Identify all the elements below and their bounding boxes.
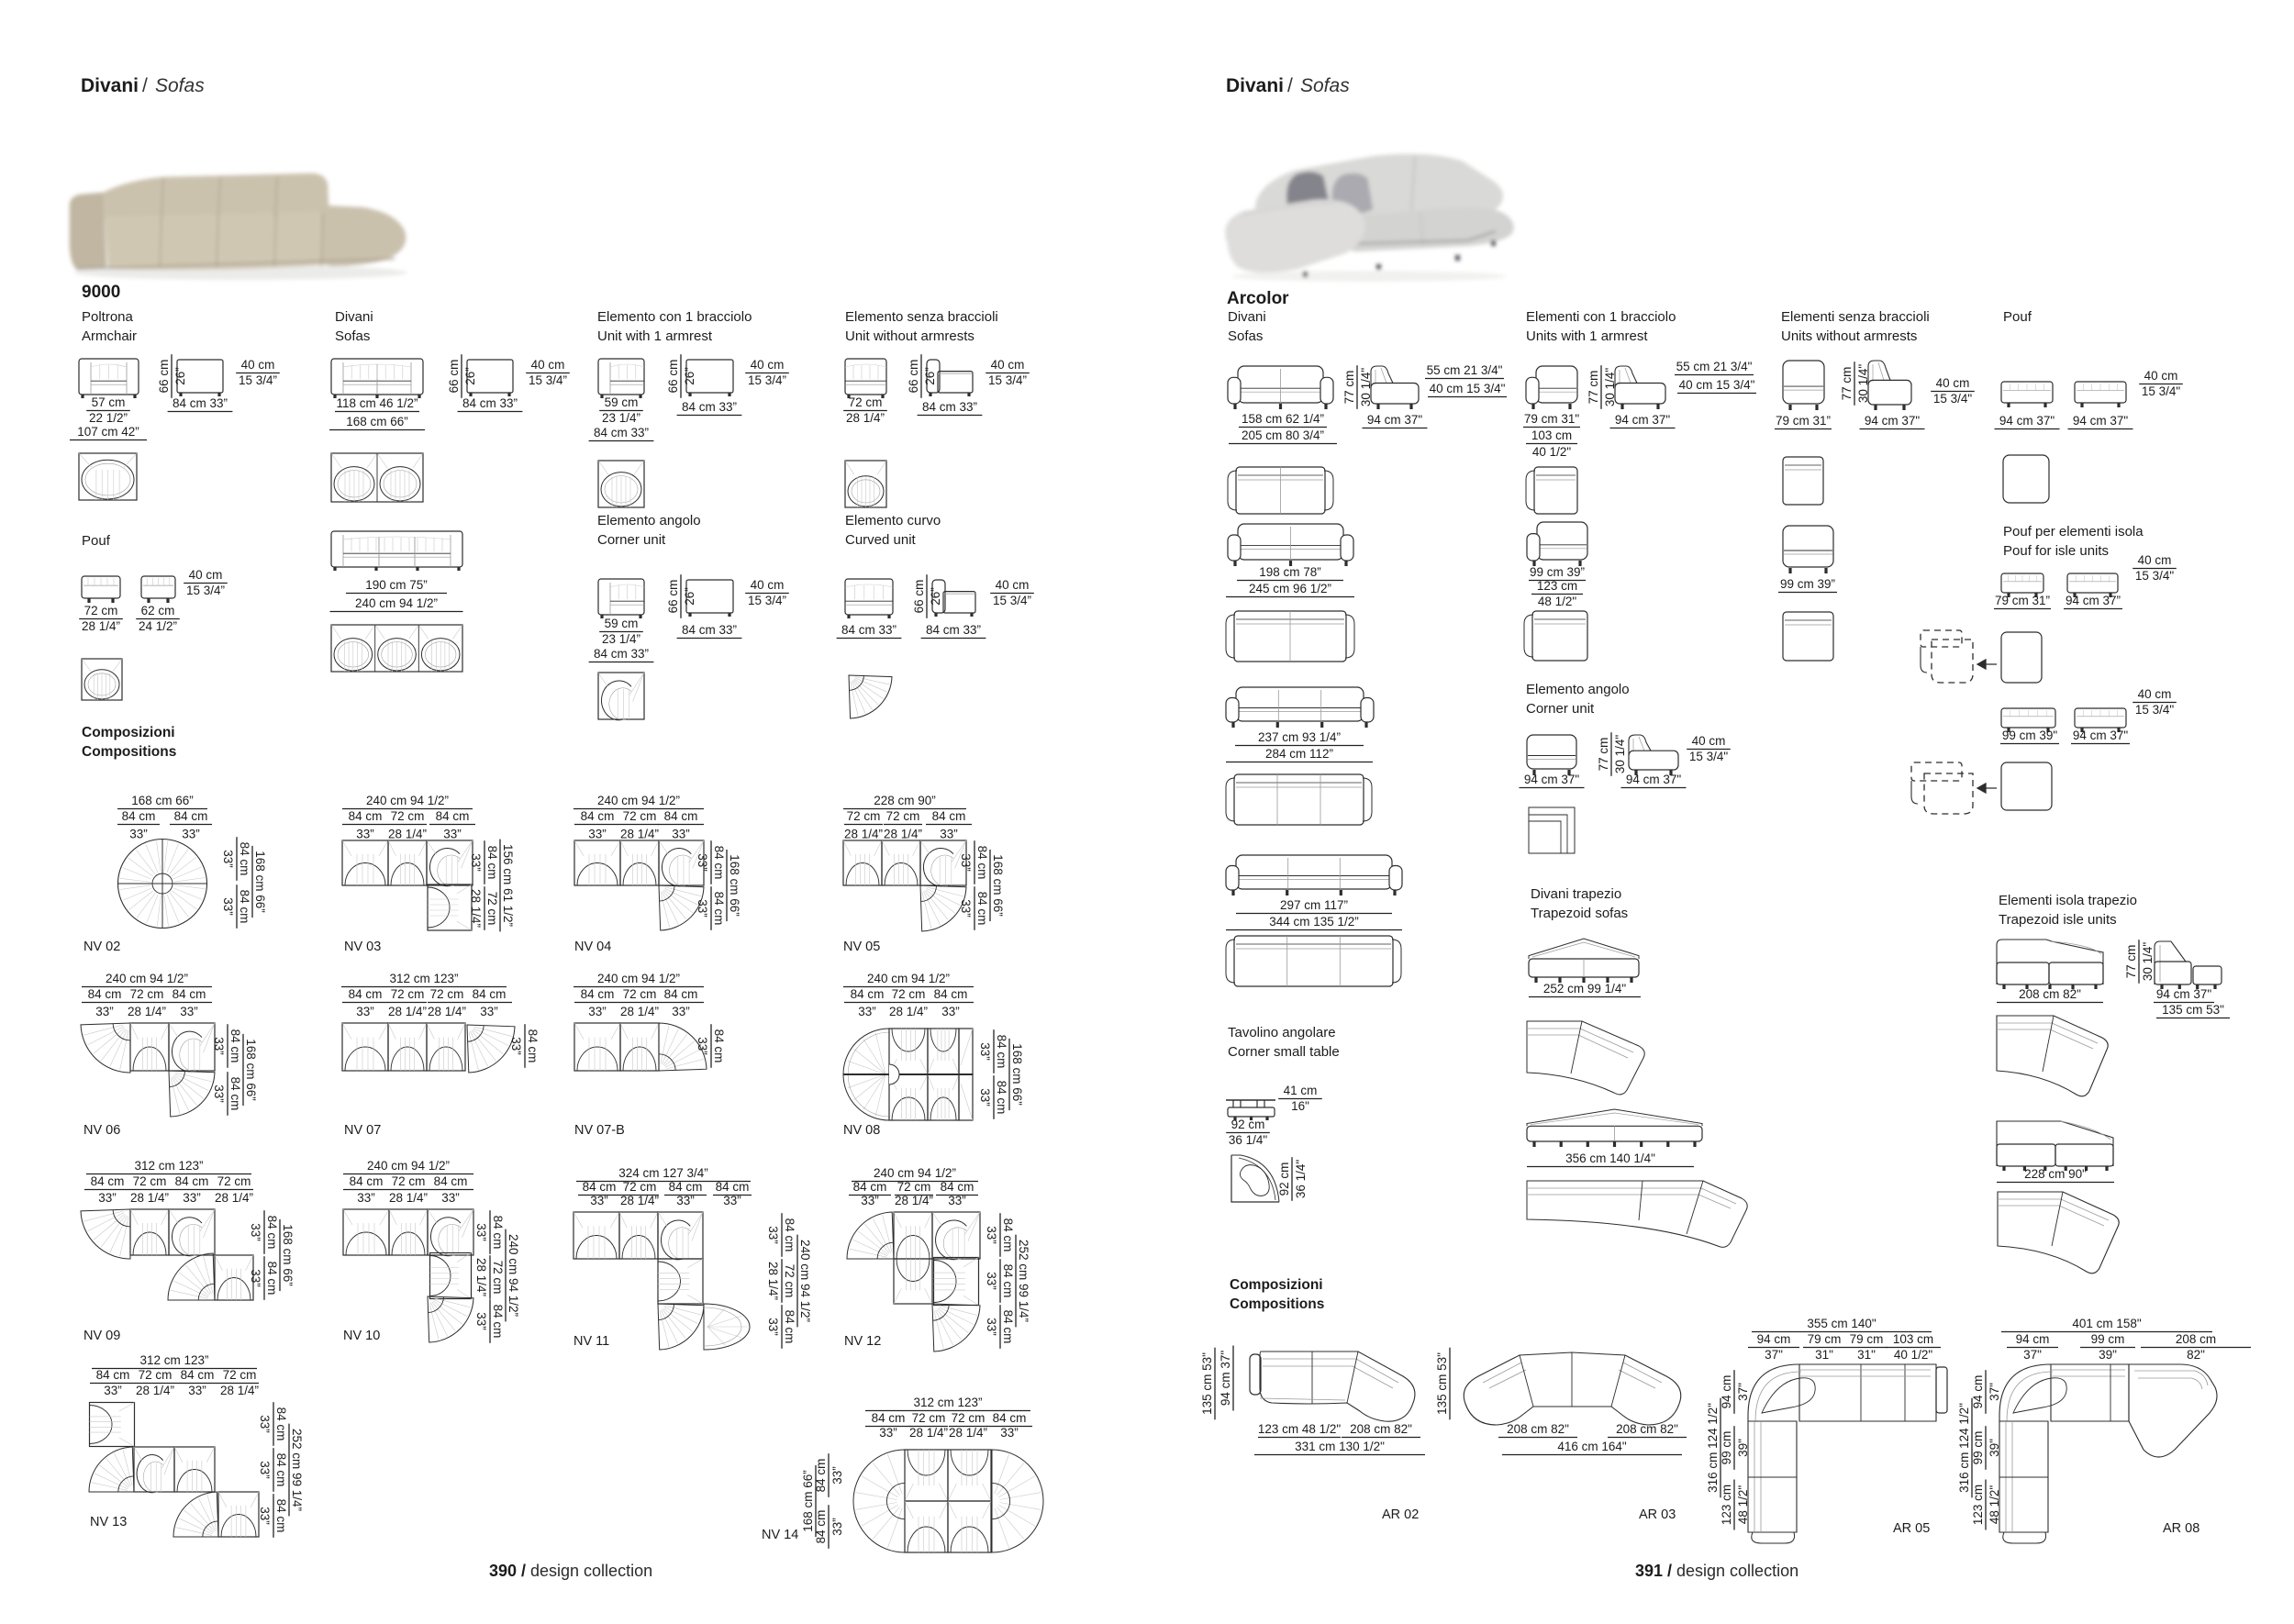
svg-text:66 cm: 66 cm [447,360,461,394]
svg-text:84 cm: 84 cm [274,1407,288,1441]
svg-text:84 cm: 84 cm [581,987,615,1001]
svg-text:158 cm 62 1/4”: 158 cm 62 1/4” [1242,412,1324,426]
svg-text:135 cm 53": 135 cm 53" [1200,1352,1214,1415]
svg-text:84 cm: 84 cm [228,1077,242,1111]
svg-text:40 cm: 40 cm [2138,553,2172,567]
svg-text:168 cm 66”: 168 cm 66” [253,851,267,913]
svg-text:331 cm 130 1/2": 331 cm 130 1/2" [1295,1440,1385,1453]
svg-text:33”: 33” [95,1005,114,1018]
svg-text:33”: 33” [696,1037,709,1055]
svg-text:15 3/4": 15 3/4" [2135,703,2175,717]
svg-text:84 cm: 84 cm [814,1459,828,1493]
svg-text:94 cm 37": 94 cm 37" [1219,1351,1232,1407]
svg-text:33”: 33” [959,899,973,918]
svg-text:NV 14: NV 14 [762,1528,798,1542]
svg-text:77 cm: 77 cm [1597,738,1610,772]
svg-text:Composizioni: Composizioni [1230,1277,1323,1293]
svg-text:168 cm 66”: 168 cm 66” [728,854,741,917]
svg-text:252 cm 99 1/4”: 252 cm 99 1/4” [1017,1240,1030,1322]
svg-text:33”: 33” [98,1191,117,1205]
svg-text:33”: 33” [474,1312,488,1330]
svg-text:99 cm: 99 cm [2091,1332,2125,1346]
svg-text:84 cm: 84 cm [238,890,251,924]
svg-text:24 1/2”: 24 1/2” [139,619,177,633]
svg-text:37": 37" [2023,1348,2042,1362]
svg-text:324 cm 127 3/4”: 324 cm 127 3/4” [618,1166,708,1180]
svg-text:84 cm: 84 cm [1001,1264,1015,1298]
svg-text:198 cm 78”: 198 cm 78” [1259,565,1321,579]
svg-text:NV 13: NV 13 [90,1515,127,1529]
svg-text:40 1/2": 40 1/2" [1532,445,1572,459]
svg-text:84 cm: 84 cm [173,987,206,1001]
svg-text:28 1/4”: 28 1/4” [620,828,659,841]
svg-text:401 cm 158": 401 cm 158" [2072,1317,2142,1330]
svg-text:33”: 33” [443,828,462,841]
svg-text:312 cm 123”: 312 cm 123” [139,1353,208,1367]
svg-text:Elementi con 1 bracciolo: Elementi con 1 bracciolo [1526,309,1676,325]
svg-text:168 cm 66”: 168 cm 66” [281,1224,295,1286]
svg-text:84 cm: 84 cm [995,1081,1008,1115]
svg-text:99 cm 39”: 99 cm 39” [1530,565,1585,579]
svg-text:28 1/4”: 28 1/4” [909,1426,948,1440]
svg-text:94 cm 37": 94 cm 37" [1367,413,1423,427]
svg-text:208 cm 82": 208 cm 82" [1616,1422,1678,1436]
svg-text:37": 37" [1765,1348,1783,1362]
svg-text:33”: 33” [474,1223,488,1241]
svg-text:33”: 33” [959,853,973,872]
svg-text:33”: 33” [1000,1426,1019,1440]
svg-text:84 cm: 84 cm [975,892,989,926]
svg-text:40 cm: 40 cm [991,358,1025,372]
svg-text:84 cm 33”: 84 cm 33” [594,647,649,661]
svg-text:99 cm 39”: 99 cm 39” [1780,577,1835,591]
svg-text:33”: 33” [978,1042,992,1061]
svg-text:84 cm: 84 cm [265,1262,279,1296]
svg-text:66 cm: 66 cm [912,580,926,614]
svg-text:84 cm 33”: 84 cm 33” [926,623,981,637]
svg-text:Divani: Divani [81,75,139,96]
svg-text:92 cm: 92 cm [1277,1162,1291,1196]
svg-text:84 cm 33”: 84 cm 33” [841,623,896,637]
svg-text:72 cm: 72 cm [130,987,164,1001]
svg-text:31": 31" [1815,1348,1833,1362]
svg-text:33”: 33” [480,1005,498,1018]
svg-text:Elemento con 1 bracciolo: Elemento con 1 bracciolo [597,309,752,325]
svg-text:NV 07: NV 07 [344,1123,381,1138]
svg-text:33”: 33” [249,1223,262,1241]
svg-text:30 1/4": 30 1/4" [2141,942,2155,982]
svg-text:Divani trapezio: Divani trapezio [1531,886,1621,902]
svg-text:33”: 33” [588,828,607,841]
svg-text:28 1/4”: 28 1/4” [846,411,885,425]
svg-text:Divani: Divani [1228,309,1266,325]
svg-text:84 cm: 84 cm [96,1368,130,1382]
svg-text:30 1/4": 30 1/4" [1603,368,1617,407]
svg-text:84 cm: 84 cm [174,809,208,823]
svg-text:26”: 26” [463,367,477,385]
svg-text:79 cm 31": 79 cm 31" [1524,412,1580,426]
svg-text:AR 08: AR 08 [2163,1521,2199,1536]
svg-text:30 1/4": 30 1/4" [1856,364,1870,404]
svg-text:NV 04: NV 04 [574,940,611,954]
svg-text:84 cm: 84 cm [664,987,698,1001]
svg-text:15 3/4”: 15 3/4” [748,373,786,387]
svg-text:design collection: design collection [530,1562,652,1580]
svg-text:Tavolino angolare: Tavolino angolare [1228,1025,1336,1040]
svg-text:118 cm 46 1/2”: 118 cm 46 1/2” [336,396,418,410]
svg-text:94 cm 37”: 94 cm 37” [2066,594,2121,607]
svg-text:84 cm: 84 cm [526,1029,540,1063]
svg-text:72 cm: 72 cm [952,1411,986,1425]
svg-text:NV 09: NV 09 [84,1329,120,1343]
svg-text:22 1/2”: 22 1/2” [89,411,128,425]
svg-text:36 1/4": 36 1/4" [1229,1133,1268,1147]
svg-text:72 cm: 72 cm [783,1264,796,1298]
svg-text:Elemento curvo: Elemento curvo [845,513,941,528]
svg-text:15 3/4": 15 3/4" [1933,392,1973,406]
svg-text:356 cm 140 1/4": 356 cm 140 1/4" [1565,1151,1655,1165]
svg-text:240 cm 94 1/2”: 240 cm 94 1/2” [106,972,188,985]
svg-text:84 cm: 84 cm [228,1029,242,1063]
svg-text:107 cm 42”: 107 cm 42” [77,425,139,439]
svg-text:208 cm 82": 208 cm 82" [2019,987,2081,1001]
svg-text:Trapezoid isle units: Trapezoid isle units [1999,912,2117,928]
svg-text:390 /: 390 / [489,1562,526,1580]
svg-text:344 cm 135 1/2”: 344 cm 135 1/2” [1269,915,1359,929]
svg-text:Sofas: Sofas [1300,75,1350,96]
svg-text:228 cm 90": 228 cm 90" [2024,1167,2087,1181]
svg-text:94 cm: 94 cm [1720,1375,1733,1409]
svg-text:23 1/4”: 23 1/4” [602,411,640,425]
svg-text:Compositions: Compositions [82,744,176,760]
svg-text:NV 07-B: NV 07-B [574,1123,625,1138]
svg-text:72 cm: 72 cm [133,1174,167,1188]
svg-text:33”: 33” [696,853,709,872]
svg-text:15 3/4": 15 3/4" [2135,569,2175,583]
svg-text:123 cm: 123 cm [1720,1485,1733,1525]
svg-text:84 cm: 84 cm [434,1174,468,1188]
svg-text:28 1/4”: 28 1/4” [388,1005,427,1018]
svg-text:Elemento angolo: Elemento angolo [1526,682,1630,697]
svg-text:92 cm: 92 cm [1231,1118,1265,1131]
svg-text:28 1/4”: 28 1/4” [895,1194,933,1207]
svg-text:168 cm 66”: 168 cm 66” [991,854,1005,917]
svg-text:72 cm: 72 cm [139,1368,173,1382]
svg-text:84 cm 33”: 84 cm 33” [462,396,518,410]
svg-text:72 cm: 72 cm [485,892,499,926]
svg-text:66 cm: 66 cm [907,360,920,394]
svg-text:Divani: Divani [335,309,373,325]
svg-text:84 cm: 84 cm [350,1174,384,1188]
svg-text:205 cm 80 3/4”: 205 cm 80 3/4” [1242,428,1324,442]
svg-text:28 1/4”: 28 1/4” [620,1005,659,1018]
svg-text:33”: 33” [879,1426,897,1440]
svg-text:NV 10: NV 10 [343,1329,380,1343]
svg-text:33”: 33” [672,828,690,841]
svg-text:84 cm: 84 cm [265,1216,279,1250]
svg-text:84 cm: 84 cm [934,987,968,1001]
svg-text:94 cm 37": 94 cm 37" [1865,414,1921,428]
svg-text:245 cm 96 1/2”: 245 cm 96 1/2” [1249,582,1331,595]
svg-text:84 cm: 84 cm [941,1180,974,1194]
svg-text:99 cm: 99 cm [1971,1431,1985,1465]
svg-text:NV 12: NV 12 [844,1334,881,1349]
svg-text:33”: 33” [129,828,148,841]
svg-text:168 cm 66”: 168 cm 66” [131,794,194,807]
svg-text:33”: 33” [830,1518,844,1536]
svg-text:33”: 33” [104,1384,122,1397]
svg-text:240 cm 94 1/2”: 240 cm 94 1/2” [507,1234,520,1317]
svg-text:26”: 26” [923,367,937,385]
svg-text:252 cm 99 1/4": 252 cm 99 1/4" [1543,982,1627,996]
svg-text:94 cm: 94 cm [1971,1375,1985,1409]
svg-text:33”: 33” [985,1318,998,1336]
svg-text:33”: 33” [221,897,235,916]
svg-text:123 cm: 123 cm [1971,1485,1985,1525]
svg-text:240 cm 94 1/2”: 240 cm 94 1/2” [867,972,950,985]
svg-text:15 3/4": 15 3/4" [2142,384,2181,398]
svg-text:40 cm: 40 cm [531,358,565,372]
svg-text:82": 82" [2187,1348,2205,1362]
svg-text:40 cm: 40 cm [751,578,785,592]
svg-text:84 cm: 84 cm [712,892,726,926]
svg-text:Divani: Divani [1226,75,1284,96]
svg-text:36 1/4": 36 1/4" [1294,1160,1308,1199]
svg-text:135 cm 53": 135 cm 53" [1435,1352,1449,1415]
svg-text:design collection: design collection [1676,1562,1798,1580]
svg-text:15 3/4”: 15 3/4” [239,373,277,387]
svg-text:240 cm 94 1/2”: 240 cm 94 1/2” [874,1166,956,1180]
svg-text:AR 05: AR 05 [1893,1521,1930,1536]
svg-text:33”: 33” [183,1191,201,1205]
svg-text:NV 11: NV 11 [573,1334,609,1349]
svg-text:123 cm 48 1/2": 123 cm 48 1/2" [1258,1422,1342,1436]
svg-text:23 1/4”: 23 1/4” [602,632,640,646]
svg-text:28 1/4”: 28 1/4” [889,1005,928,1018]
svg-text:33”: 33” [221,850,235,868]
svg-text:40 cm 15 3/4": 40 cm 15 3/4" [1430,382,1506,395]
svg-text:208 cm 82": 208 cm 82" [1507,1422,1569,1436]
svg-text:84 cm: 84 cm [932,809,966,823]
svg-text:33”: 33” [357,1191,375,1205]
svg-text:40 cm: 40 cm [2138,687,2172,701]
svg-text:Sofas: Sofas [1228,328,1263,344]
svg-text:33”: 33” [676,1194,695,1207]
svg-text:135 cm 53": 135 cm 53" [2162,1003,2224,1017]
svg-text:84 cm 33”: 84 cm 33” [682,623,737,637]
svg-text:208 cm 82": 208 cm 82" [1350,1422,1412,1436]
svg-text:84 cm: 84 cm [349,987,383,1001]
svg-text:55 cm 21 3/4": 55 cm 21 3/4" [1676,360,1753,373]
svg-text:84 cm: 84 cm [485,846,499,880]
svg-text:30 1/4": 30 1/4" [1359,368,1373,407]
svg-text:72 cm: 72 cm [892,987,926,1001]
svg-text:33”: 33” [948,1194,966,1207]
svg-text:77 cm: 77 cm [1587,371,1600,405]
svg-text:103 cm: 103 cm [1893,1332,1933,1346]
svg-text:Sofas: Sofas [155,75,205,96]
svg-text:Pouf per elementi isola: Pouf per elementi isola [2003,524,2144,539]
svg-text:Curved unit: Curved unit [845,532,917,548]
svg-text:Poltrona: Poltrona [82,309,134,325]
svg-text:/: / [142,75,148,96]
svg-text:240 cm 94 1/2”: 240 cm 94 1/2” [367,1159,450,1173]
svg-text:39": 39" [2099,1348,2117,1362]
svg-text:Elemento angolo: Elemento angolo [597,513,701,528]
svg-text:72 cm: 72 cm [912,1411,946,1425]
svg-text:28 1/4”: 28 1/4” [388,828,427,841]
svg-text:79 cm: 79 cm [1808,1332,1842,1346]
svg-text:72 cm: 72 cm [847,809,881,823]
svg-text:NV 02: NV 02 [84,940,120,954]
svg-text:Unit with 1 armrest: Unit with 1 armrest [597,328,713,344]
svg-text:33”: 33” [858,1005,876,1018]
svg-text:Pouf for isle units: Pouf for isle units [2003,543,2109,559]
svg-text:416 cm 164": 416 cm 164" [1557,1440,1627,1453]
svg-text:94 cm 37": 94 cm 37" [1626,773,1682,786]
svg-text:28 1/4”: 28 1/4” [220,1384,259,1397]
svg-text:72 cm: 72 cm [491,1261,505,1295]
svg-text:94 cm 37": 94 cm 37" [1615,413,1671,427]
svg-text:237 cm 93 1/4”: 237 cm 93 1/4” [1258,730,1341,744]
svg-text:33”: 33” [212,1085,226,1103]
svg-text:Elementi senza braccioli: Elementi senza braccioli [1781,309,1930,325]
svg-text:Corner small table: Corner small table [1228,1044,1340,1060]
svg-text:30 1/4": 30 1/4" [1613,735,1627,774]
svg-text:41 cm: 41 cm [1284,1084,1318,1097]
svg-text:84 cm 33”: 84 cm 33” [173,396,228,410]
svg-text:Unit without armrests: Unit without armrests [845,328,974,344]
svg-text:72 cm: 72 cm [623,809,657,823]
svg-text:123 cm: 123 cm [1537,579,1577,593]
svg-text:72 cm: 72 cm [84,604,118,617]
svg-text:40 cm 15 3/4": 40 cm 15 3/4" [1679,378,1755,392]
svg-text:312 cm 123”: 312 cm 123” [389,972,458,985]
svg-text:28 1/4”: 28 1/4” [428,1005,466,1018]
svg-text:312 cm 123”: 312 cm 123” [913,1396,982,1409]
svg-text:33”: 33” [588,1005,607,1018]
svg-text:103 cm: 103 cm [1531,428,1572,442]
svg-text:33”: 33” [985,1226,998,1244]
svg-text:240 cm 94 1/2”: 240 cm 94 1/2” [597,794,680,807]
svg-text:28 1/4”: 28 1/4” [82,619,120,633]
svg-text:84 cm: 84 cm [491,1305,505,1339]
svg-text:79 cm 31”: 79 cm 31” [1995,594,2050,607]
svg-text:33”: 33” [249,1269,262,1287]
svg-text:240 cm 94 1/2”: 240 cm 94 1/2” [366,794,449,807]
svg-text:72 cm: 72 cm [849,395,883,409]
svg-text:72 cm: 72 cm [886,809,920,823]
svg-text:33”: 33” [180,1005,198,1018]
svg-text:33”: 33” [182,828,200,841]
svg-text:66 cm: 66 cm [666,360,680,394]
svg-text:168 cm 66”: 168 cm 66” [346,415,408,428]
svg-text:84 cm: 84 cm [583,1180,617,1194]
svg-text:84 cm: 84 cm [436,809,470,823]
svg-text:40 cm: 40 cm [189,568,223,582]
svg-text:84 cm: 84 cm [274,1499,288,1533]
svg-text:AR 03: AR 03 [1639,1507,1676,1522]
svg-text:284 cm 112”: 284 cm 112” [1265,747,1333,761]
svg-text:72 cm: 72 cm [223,1368,257,1382]
svg-text:99 cm 39": 99 cm 39" [2002,729,2058,742]
svg-text:297 cm 117”: 297 cm 117” [1280,898,1348,912]
svg-text:84 cm: 84 cm [716,1180,750,1194]
svg-text:208 cm: 208 cm [2176,1332,2216,1346]
svg-text:48 1/2": 48 1/2" [1538,595,1577,608]
svg-text:84 cm: 84 cm [1001,1310,1015,1344]
svg-text:62 cm: 62 cm [141,604,175,617]
svg-text:355 cm 140": 355 cm 140" [1807,1317,1876,1330]
svg-text:72 cm: 72 cm [391,987,425,1001]
svg-text:59 cm: 59 cm [605,395,639,409]
svg-text:28 1/4”: 28 1/4” [474,1258,488,1296]
svg-text:84 cm: 84 cm [872,1411,906,1425]
svg-text:28 1/4”: 28 1/4” [469,889,483,928]
svg-text:240 cm 94 1/2”: 240 cm 94 1/2” [597,972,680,985]
svg-text:168 cm 66”: 168 cm 66” [244,1039,258,1101]
svg-text:66 cm: 66 cm [666,580,680,614]
svg-text:72 cm: 72 cm [217,1174,251,1188]
svg-text:84 cm: 84 cm [274,1453,288,1487]
svg-text:33”: 33” [469,853,483,872]
svg-text:94 cm: 94 cm [1757,1332,1791,1346]
svg-text:Arcolor: Arcolor [1227,289,1289,308]
svg-text:84 cm: 84 cm [238,842,251,876]
svg-text:84 cm: 84 cm [975,846,989,880]
svg-text:16": 16" [1291,1099,1309,1113]
svg-text:84 cm: 84 cm [783,1310,796,1344]
svg-text:84 cm: 84 cm [993,1411,1027,1425]
svg-text:33”: 33” [696,899,709,918]
svg-text:28 1/4”: 28 1/4” [389,1191,428,1205]
svg-text:77 cm: 77 cm [1840,367,1854,401]
svg-text:33”: 33” [356,1005,374,1018]
svg-text:84 cm: 84 cm [995,1035,1008,1069]
svg-text:Trapezoid sofas: Trapezoid sofas [1531,906,1628,921]
svg-text:33”: 33” [985,1272,998,1290]
svg-text:84 cm: 84 cm [814,1510,828,1544]
svg-text:15 3/4”: 15 3/4” [529,373,567,387]
svg-text:84 cm: 84 cm [581,809,615,823]
svg-text:84 cm 33”: 84 cm 33” [594,426,649,439]
svg-text:77 cm: 77 cm [1342,371,1356,405]
svg-text:Units without armrests: Units without armrests [1781,328,1917,344]
svg-text:156 cm 61 1/2”: 156 cm 61 1/2” [501,844,515,927]
svg-text:28 1/4”: 28 1/4” [884,828,922,841]
svg-text:84 cm: 84 cm [712,846,726,880]
svg-text:Corner unit: Corner unit [597,532,666,548]
svg-text:40 cm: 40 cm [1692,734,1726,748]
svg-text:26”: 26” [683,587,696,606]
svg-text:33”: 33” [258,1507,272,1525]
svg-text:33”: 33” [978,1088,992,1107]
svg-text:94 cm 37": 94 cm 37" [1524,773,1580,786]
svg-text:312 cm 123”: 312 cm 123” [134,1159,203,1173]
svg-text:190 cm 75”: 190 cm 75” [365,578,428,592]
svg-text:79 cm 31”: 79 cm 31” [1776,414,1831,428]
svg-text:33”: 33” [672,1005,690,1018]
svg-text:84 cm: 84 cm [91,1174,125,1188]
svg-text:28 1/4”: 28 1/4” [766,1262,780,1300]
svg-text:28 1/4”: 28 1/4” [844,828,883,841]
svg-text:99 cm: 99 cm [1720,1431,1733,1465]
svg-text:/: / [1287,75,1293,96]
svg-text:26”: 26” [173,367,187,385]
svg-text:228 cm 90”: 228 cm 90” [874,794,936,807]
svg-text:28 1/4”: 28 1/4” [949,1426,987,1440]
svg-text:72 cm: 72 cm [392,1174,426,1188]
